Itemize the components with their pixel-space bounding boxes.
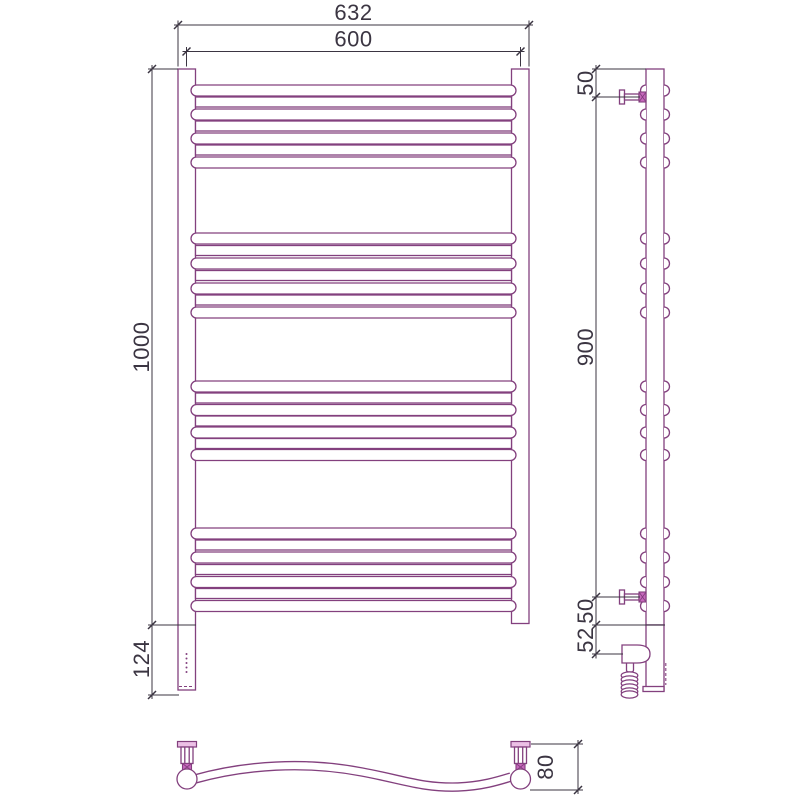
rung-curved xyxy=(191,109,516,120)
dimension-label: 124 xyxy=(129,640,154,678)
rung-bump-front xyxy=(664,381,670,392)
rung-bump-front xyxy=(664,405,670,416)
rung-bump-front xyxy=(664,307,670,318)
front-right-post xyxy=(512,69,530,624)
rung-straight xyxy=(196,540,512,550)
rung-straight xyxy=(196,589,512,599)
dimension-label: 900 xyxy=(573,328,598,366)
rung-curved xyxy=(191,405,516,416)
side-post-bottom-cap xyxy=(643,687,664,692)
rung-bump-front xyxy=(664,157,670,168)
rung-bump-back xyxy=(641,307,646,318)
rung-bump-back xyxy=(641,233,646,244)
rung-bump-back xyxy=(641,157,646,168)
rung-bump-back xyxy=(641,283,646,294)
rung-bump-front xyxy=(664,109,670,120)
indicator-dot xyxy=(186,653,188,655)
bracket-flange xyxy=(178,742,197,748)
side-view: 50 900 50 52 xyxy=(573,65,670,698)
rung-curved xyxy=(191,381,516,392)
bottom-bracket-right xyxy=(511,742,530,771)
drawing-canvas: 632 600 1000 124 xyxy=(0,0,800,800)
dimension-600: 600 xyxy=(183,27,525,67)
rung-bump-front xyxy=(664,85,670,96)
bottom-view: 80 xyxy=(177,740,583,794)
rung-curved xyxy=(191,577,516,588)
rung-curved xyxy=(191,283,516,294)
right-post-end xyxy=(511,769,531,789)
rung-curved xyxy=(191,307,516,318)
rung-bump-back xyxy=(641,258,646,269)
bracket-arm xyxy=(181,747,193,764)
dimension-label: 600 xyxy=(334,27,372,52)
rung-bump-back xyxy=(641,381,646,392)
towel-rail-technical-drawing: 632 600 1000 124 xyxy=(0,0,800,800)
rung-curved xyxy=(191,601,516,612)
front-view: 632 600 1000 124 xyxy=(129,0,533,699)
rung-bump-back xyxy=(641,552,646,563)
indicator-dot xyxy=(186,667,188,669)
rung-curved xyxy=(191,133,516,144)
dimension-label: 80 xyxy=(533,754,558,779)
rung-bump-back xyxy=(641,133,646,144)
curved-rung-fill xyxy=(195,766,511,787)
cable-neck xyxy=(627,663,634,672)
dimension-label: 52 xyxy=(573,627,598,652)
rung-curved xyxy=(191,450,516,461)
rung-straight xyxy=(196,246,512,256)
rung-straight xyxy=(196,439,512,449)
rung-bump-front xyxy=(664,427,670,438)
rung-bump-front xyxy=(664,258,670,269)
rung-bump-front xyxy=(664,133,670,144)
dimension-80: 80 xyxy=(530,740,583,794)
dimension-label: 632 xyxy=(334,0,372,25)
rung-straight xyxy=(196,271,512,281)
rung-straight xyxy=(196,295,512,305)
rung-straight xyxy=(196,97,512,107)
rung-curved xyxy=(191,233,516,244)
cable-coil xyxy=(621,672,638,698)
rung-straight xyxy=(196,393,512,403)
side-post xyxy=(646,69,664,625)
rung-bump-front xyxy=(664,233,670,244)
rung-bump-back xyxy=(641,109,646,120)
rung-bump-front xyxy=(664,601,670,612)
rung-curved xyxy=(191,427,516,438)
indicator-dot xyxy=(186,671,188,673)
rung-straight xyxy=(196,145,512,155)
rung-straight xyxy=(196,121,512,131)
dimension-label: 1000 xyxy=(129,322,154,373)
rung-straight xyxy=(196,565,512,575)
rung-curved xyxy=(191,258,516,269)
cable-coil-loop xyxy=(621,691,638,698)
rung-curved xyxy=(191,528,516,539)
rung-curved xyxy=(191,157,516,168)
bottom-bracket-left xyxy=(178,742,197,771)
front-rungs xyxy=(191,85,516,612)
rung-bump-back xyxy=(641,528,646,539)
left-post-end xyxy=(177,769,197,789)
dimension-label: 50 xyxy=(573,598,598,623)
rung-curved xyxy=(191,85,516,96)
rung-straight xyxy=(196,416,512,426)
rung-bump-back xyxy=(641,405,646,416)
rung-bump-back xyxy=(641,427,646,438)
bracket-arm xyxy=(515,747,527,764)
rung-bump-back xyxy=(641,577,646,588)
rung-bump-front xyxy=(664,528,670,539)
rung-bump-front xyxy=(664,450,670,461)
rung-bump-front xyxy=(664,283,670,294)
heating-element-housing xyxy=(622,645,650,663)
rung-bump-front xyxy=(664,577,670,588)
rung-curved xyxy=(191,552,516,563)
bracket-flange xyxy=(511,742,530,748)
indicator-dot xyxy=(186,662,188,664)
dimension-label: 50 xyxy=(573,70,598,95)
rung-bump-front xyxy=(664,552,670,563)
indicator-dot xyxy=(186,658,188,660)
rung-bump-back xyxy=(641,450,646,461)
